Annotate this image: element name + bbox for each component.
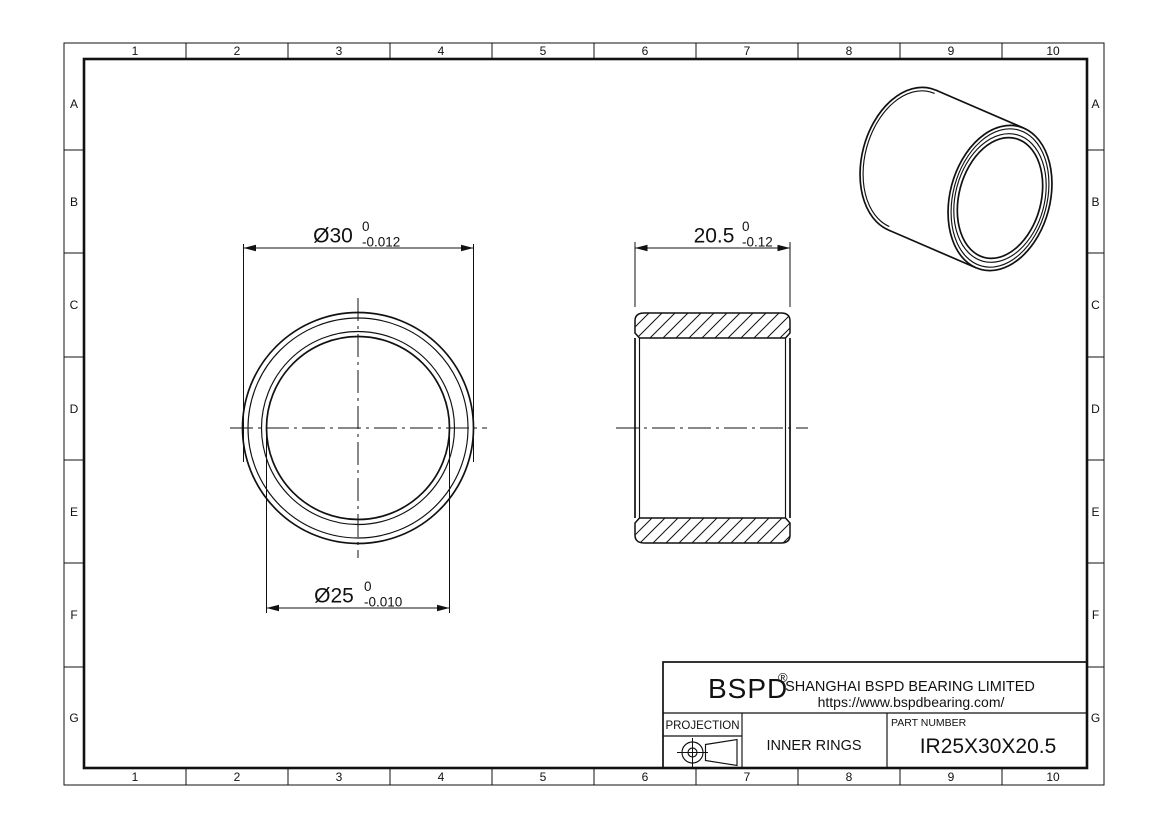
arrowhead-right xyxy=(778,245,791,252)
grid-col-label: 5 xyxy=(540,770,547,784)
part-number: IR25X30X20.5 xyxy=(920,735,1057,758)
grid-row-label: D xyxy=(70,402,79,416)
grid-row-label: B xyxy=(1091,195,1099,209)
grid-col-label: 7 xyxy=(744,770,751,784)
grid-col-label: 3 xyxy=(336,44,343,58)
tolerance-lower: -0.010 xyxy=(364,595,402,610)
grid-col-label: 3 xyxy=(336,770,343,784)
logo-text: BSPD xyxy=(708,673,788,704)
grid-row-label: G xyxy=(1091,711,1100,725)
grid-row-label: B xyxy=(70,195,78,209)
dimension-width: 20.5 0 -0.12 xyxy=(635,219,790,307)
lower-wall-section xyxy=(635,518,790,543)
grid-row-label: C xyxy=(70,298,79,312)
front-view: Ø30 0 -0.012 Ø25 0 -0.010 xyxy=(230,219,487,613)
grid-col-label: 4 xyxy=(438,44,445,58)
grid-row-label: E xyxy=(1091,505,1099,519)
grid-col-label: 9 xyxy=(948,770,955,784)
arrowhead-right xyxy=(437,605,450,612)
top-strip-dividers xyxy=(186,43,1002,59)
grid-row-label: E xyxy=(70,505,78,519)
third-angle-projection-icon xyxy=(677,738,737,767)
projection-label: PROJECTION xyxy=(665,720,739,732)
grid-col-label: 10 xyxy=(1046,44,1060,58)
grid-row-label: A xyxy=(1091,97,1099,111)
arrowhead-right xyxy=(461,245,474,252)
grid-col-label: 1 xyxy=(132,44,139,58)
tolerance-lower: -0.012 xyxy=(362,235,400,250)
product-type: INNER RINGS xyxy=(766,738,861,754)
title-block: BSPD ® SHANGHAI BSPD BEARING LIMITED htt… xyxy=(663,662,1087,768)
engineering-drawing: 1 2 3 4 5 6 7 8 9 10 1 2 3 4 5 6 7 8 9 1… xyxy=(0,0,1170,827)
tolerance-upper: 0 xyxy=(364,579,372,594)
section-view: 20.5 0 -0.12 xyxy=(616,219,808,543)
tolerance-lower: -0.12 xyxy=(742,235,773,250)
grid-col-label: 8 xyxy=(846,770,853,784)
tolerance-upper: 0 xyxy=(742,219,750,234)
grid-row-label: F xyxy=(1092,608,1099,622)
company-name: SHANGHAI BSPD BEARING LIMITED xyxy=(785,679,1035,695)
upper-wall-section xyxy=(635,313,790,338)
grid-col-label: 10 xyxy=(1046,770,1060,784)
company-website: https://www.bspdbearing.com/ xyxy=(818,694,1005,710)
extension-lines xyxy=(635,242,790,307)
grid-col-label: 8 xyxy=(846,44,853,58)
grid-col-label: 7 xyxy=(744,44,751,58)
bottom-strip-dividers xyxy=(186,768,1002,785)
grid-col-label: 2 xyxy=(234,770,241,784)
grid-col-label: 6 xyxy=(642,44,649,58)
dimension-text: Ø25 xyxy=(314,585,354,608)
arrowhead-left xyxy=(635,245,648,252)
grid-col-label: 2 xyxy=(234,44,241,58)
drawing-sheet: 1 2 3 4 5 6 7 8 9 10 1 2 3 4 5 6 7 8 9 1… xyxy=(0,0,1170,827)
isometric-view xyxy=(845,76,1068,283)
dimension-text: 20.5 xyxy=(694,225,735,248)
grid-row-label: F xyxy=(70,608,77,622)
grid-row-label: G xyxy=(69,711,78,725)
grid-row-label: C xyxy=(1091,298,1100,312)
arrowhead-left xyxy=(267,605,280,612)
dimension-text: Ø30 xyxy=(313,225,353,248)
grid-col-label: 4 xyxy=(438,770,445,784)
grid-col-label: 5 xyxy=(540,44,547,58)
grid-col-label: 6 xyxy=(642,770,649,784)
grid-col-label: 1 xyxy=(132,770,139,784)
grid-row-label: D xyxy=(1091,402,1100,416)
grid-col-label: 9 xyxy=(948,44,955,58)
part-number-label: PART NUMBER xyxy=(891,717,967,729)
tolerance-upper: 0 xyxy=(362,219,370,234)
arrowhead-left xyxy=(244,245,257,252)
grid-row-label: A xyxy=(70,97,78,111)
